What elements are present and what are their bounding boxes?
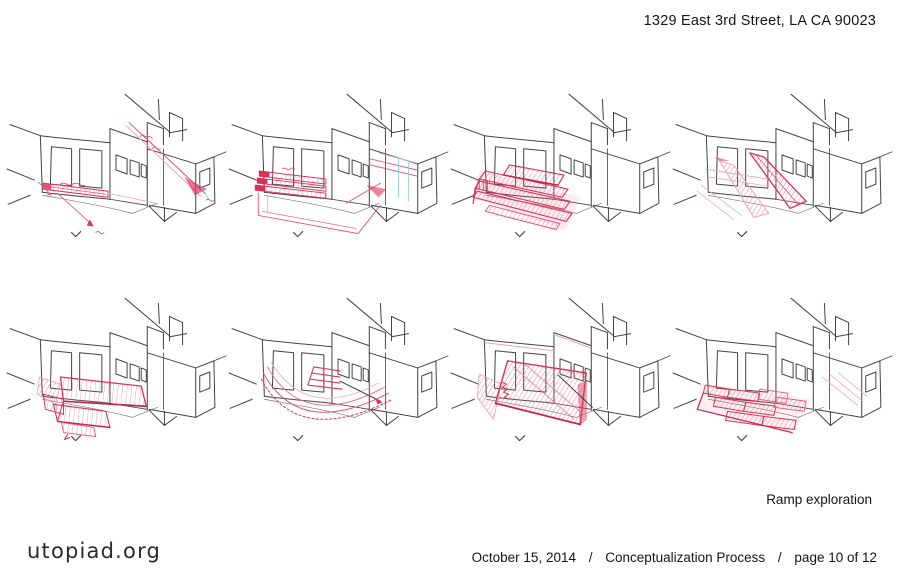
sketch-two-diagonal-entry-ramps <box>671 84 893 256</box>
sketch-terraced-zigzag-ramps <box>671 288 893 460</box>
footer-meta: October 15, 2014 / Conceptualization Pro… <box>472 550 877 565</box>
footer-separator: / <box>778 550 782 565</box>
scanned-document-page: 1329 East 3rd Street, LA CA 90023 <box>0 0 900 582</box>
footer-date: October 15, 2014 <box>472 550 576 565</box>
site-address: 1329 East 3rd Street, LA CA 90023 <box>644 13 876 29</box>
sketch-ramp-along-left-wall-with-dimension-arrows <box>5 84 227 256</box>
sketch-switchback-parallel-ramps <box>449 84 671 256</box>
sketch-grid <box>5 84 895 460</box>
page-caption: Ramp exploration <box>766 492 872 507</box>
sketch-stacked-wall-ramps-with-floor-outline <box>227 84 449 256</box>
sketch-full-width-inclined-plane <box>449 288 671 460</box>
footer-separator: / <box>589 550 593 565</box>
sketch-curved-sweeping-ramp <box>227 288 449 460</box>
sketch-stepped-platform-ramp <box>5 288 227 460</box>
footer-page-indicator: page 10 of 12 <box>794 550 877 565</box>
brand-wordmark: utopiad.org <box>27 539 161 563</box>
footer-process: Conceptualization Process <box>605 550 765 565</box>
